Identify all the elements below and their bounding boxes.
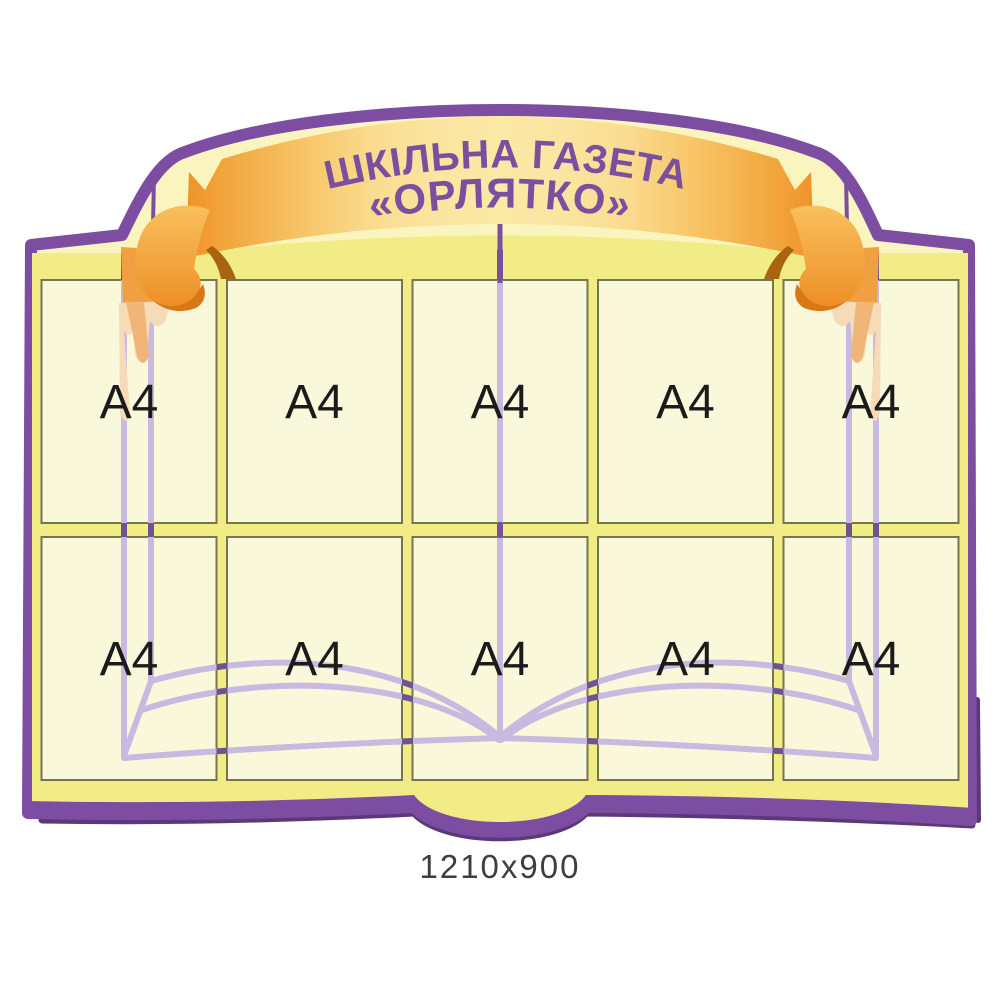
svg-text:A4: A4 <box>100 376 159 429</box>
svg-text:A4: A4 <box>285 376 344 429</box>
svg-text:A4: A4 <box>842 376 901 429</box>
svg-text:A4: A4 <box>656 633 715 686</box>
svg-text:A4: A4 <box>656 376 715 429</box>
svg-text:A4: A4 <box>285 633 344 686</box>
svg-text:A4: A4 <box>842 633 901 686</box>
svg-text:A4: A4 <box>471 633 530 686</box>
svg-text:A4: A4 <box>471 376 530 429</box>
svg-text:1210x900: 1210x900 <box>420 848 581 885</box>
svg-text:A4: A4 <box>100 633 159 686</box>
